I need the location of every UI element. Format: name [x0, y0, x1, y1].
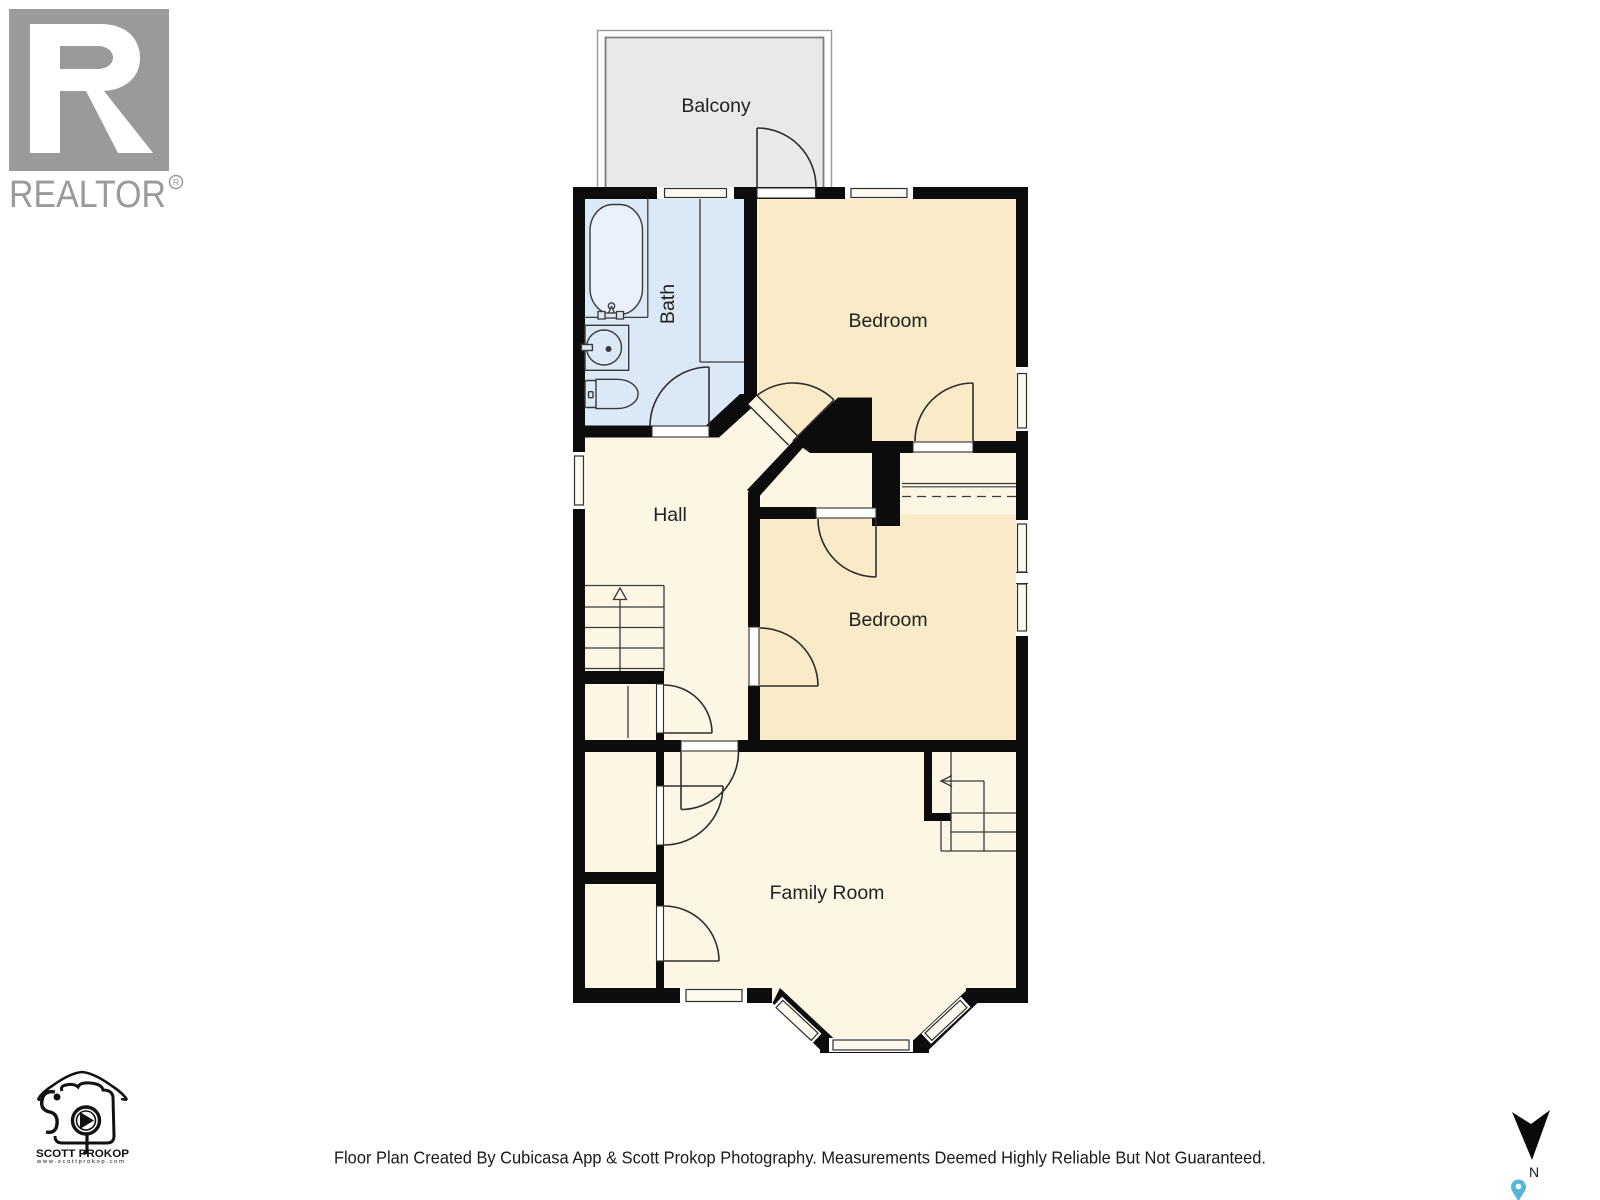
svg-text:N: N: [1529, 1164, 1539, 1180]
svg-text:Hall: Hall: [653, 504, 687, 526]
svg-text:Bath: Bath: [657, 284, 679, 324]
svg-text:R: R: [173, 178, 180, 188]
svg-text:Floor Plan Created By Cubicasa: Floor Plan Created By Cubicasa App & Sco…: [334, 1148, 1266, 1168]
svg-text:Bedroom: Bedroom: [848, 609, 927, 631]
svg-text:Bedroom: Bedroom: [848, 310, 927, 332]
svg-text:w w w . s c o t t p r o k o p: w w w . s c o t t p r o k o p . c o m: [36, 1159, 125, 1165]
svg-text:Balcony: Balcony: [681, 95, 751, 117]
svg-text:Family Room: Family Room: [770, 882, 885, 904]
svg-text:REALTOR: REALTOR: [9, 174, 166, 216]
